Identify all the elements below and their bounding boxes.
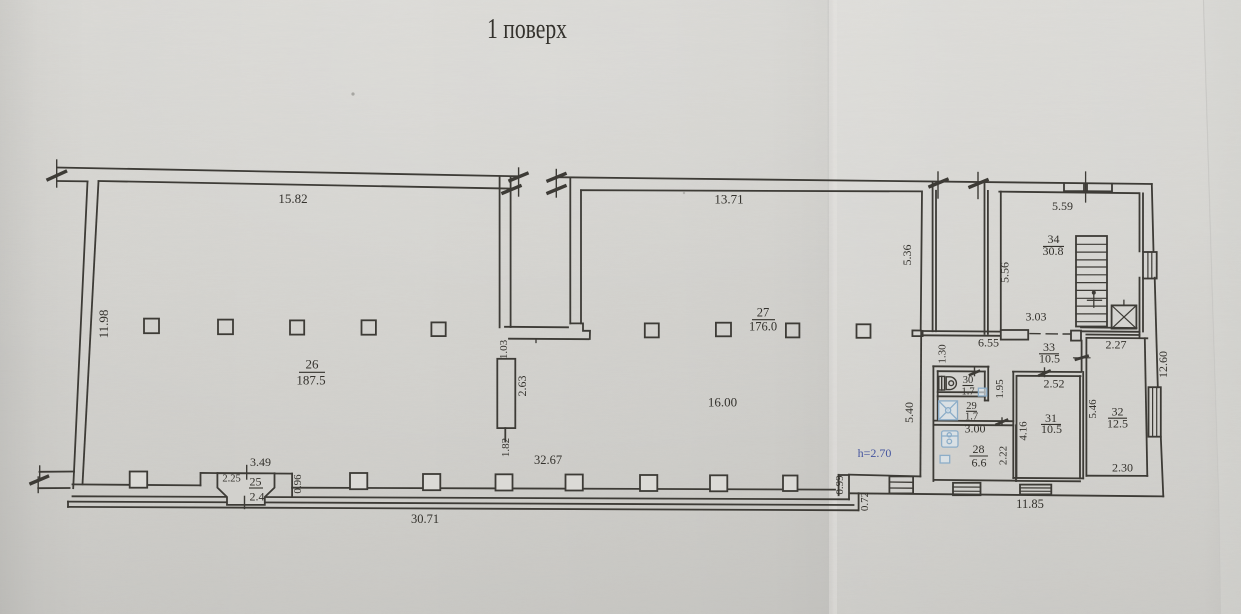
svg-text:28: 28 bbox=[973, 442, 985, 456]
svg-text:3.49: 3.49 bbox=[250, 455, 271, 469]
svg-text:2.25: 2.25 bbox=[222, 474, 240, 485]
svg-text:0.96: 0.96 bbox=[292, 474, 304, 494]
svg-text:25: 25 bbox=[250, 475, 262, 489]
svg-text:6.55: 6.55 bbox=[978, 336, 999, 350]
svg-text:30: 30 bbox=[963, 375, 974, 386]
svg-text:4.16: 4.16 bbox=[1018, 421, 1030, 441]
svg-text:29: 29 bbox=[966, 401, 977, 412]
svg-text:1.95: 1.95 bbox=[994, 379, 1006, 399]
svg-text:26: 26 bbox=[306, 357, 320, 372]
svg-text:5.40: 5.40 bbox=[902, 402, 916, 423]
svg-text:16.00: 16.00 bbox=[708, 395, 737, 410]
svg-text:176.0: 176.0 bbox=[749, 320, 777, 334]
svg-text:1.82: 1.82 bbox=[500, 438, 512, 457]
svg-text:32.67: 32.67 bbox=[534, 453, 562, 467]
svg-text:h=2.70: h=2.70 bbox=[858, 446, 892, 460]
svg-text:2.4: 2.4 bbox=[250, 490, 265, 504]
svg-text:1.03: 1.03 bbox=[498, 339, 510, 359]
svg-text:187.5: 187.5 bbox=[296, 373, 325, 388]
svg-text:1.30: 1.30 bbox=[937, 344, 949, 364]
svg-text:12.60: 12.60 bbox=[1156, 351, 1170, 378]
svg-text:11.98: 11.98 bbox=[96, 310, 111, 339]
svg-text:5.46: 5.46 bbox=[1087, 399, 1099, 419]
svg-text:2.63: 2.63 bbox=[515, 376, 529, 397]
svg-text:5.59: 5.59 bbox=[1052, 199, 1073, 213]
svg-text:5.36: 5.36 bbox=[900, 245, 914, 266]
svg-text:2.22: 2.22 bbox=[998, 446, 1010, 465]
svg-text:5.56: 5.56 bbox=[998, 262, 1012, 283]
svg-text:3.03: 3.03 bbox=[1026, 310, 1047, 324]
svg-text:27: 27 bbox=[757, 306, 770, 320]
svg-text:0.99: 0.99 bbox=[834, 475, 846, 495]
svg-text:2.52: 2.52 bbox=[1044, 377, 1065, 391]
svg-text:2.30: 2.30 bbox=[1112, 461, 1133, 475]
svg-text:13.71: 13.71 bbox=[714, 192, 743, 207]
svg-text:0.72: 0.72 bbox=[859, 492, 871, 511]
svg-text:2.27: 2.27 bbox=[1106, 338, 1127, 352]
svg-text:1 поверх: 1 поверх bbox=[487, 13, 567, 45]
svg-text:1.7: 1.7 bbox=[961, 387, 974, 398]
svg-text:15.82: 15.82 bbox=[278, 191, 307, 206]
svg-text:11.85: 11.85 bbox=[1016, 497, 1044, 511]
svg-text:3.00: 3.00 bbox=[965, 422, 986, 436]
svg-text:6.6: 6.6 bbox=[972, 456, 987, 470]
svg-text:30.71: 30.71 bbox=[411, 512, 439, 526]
